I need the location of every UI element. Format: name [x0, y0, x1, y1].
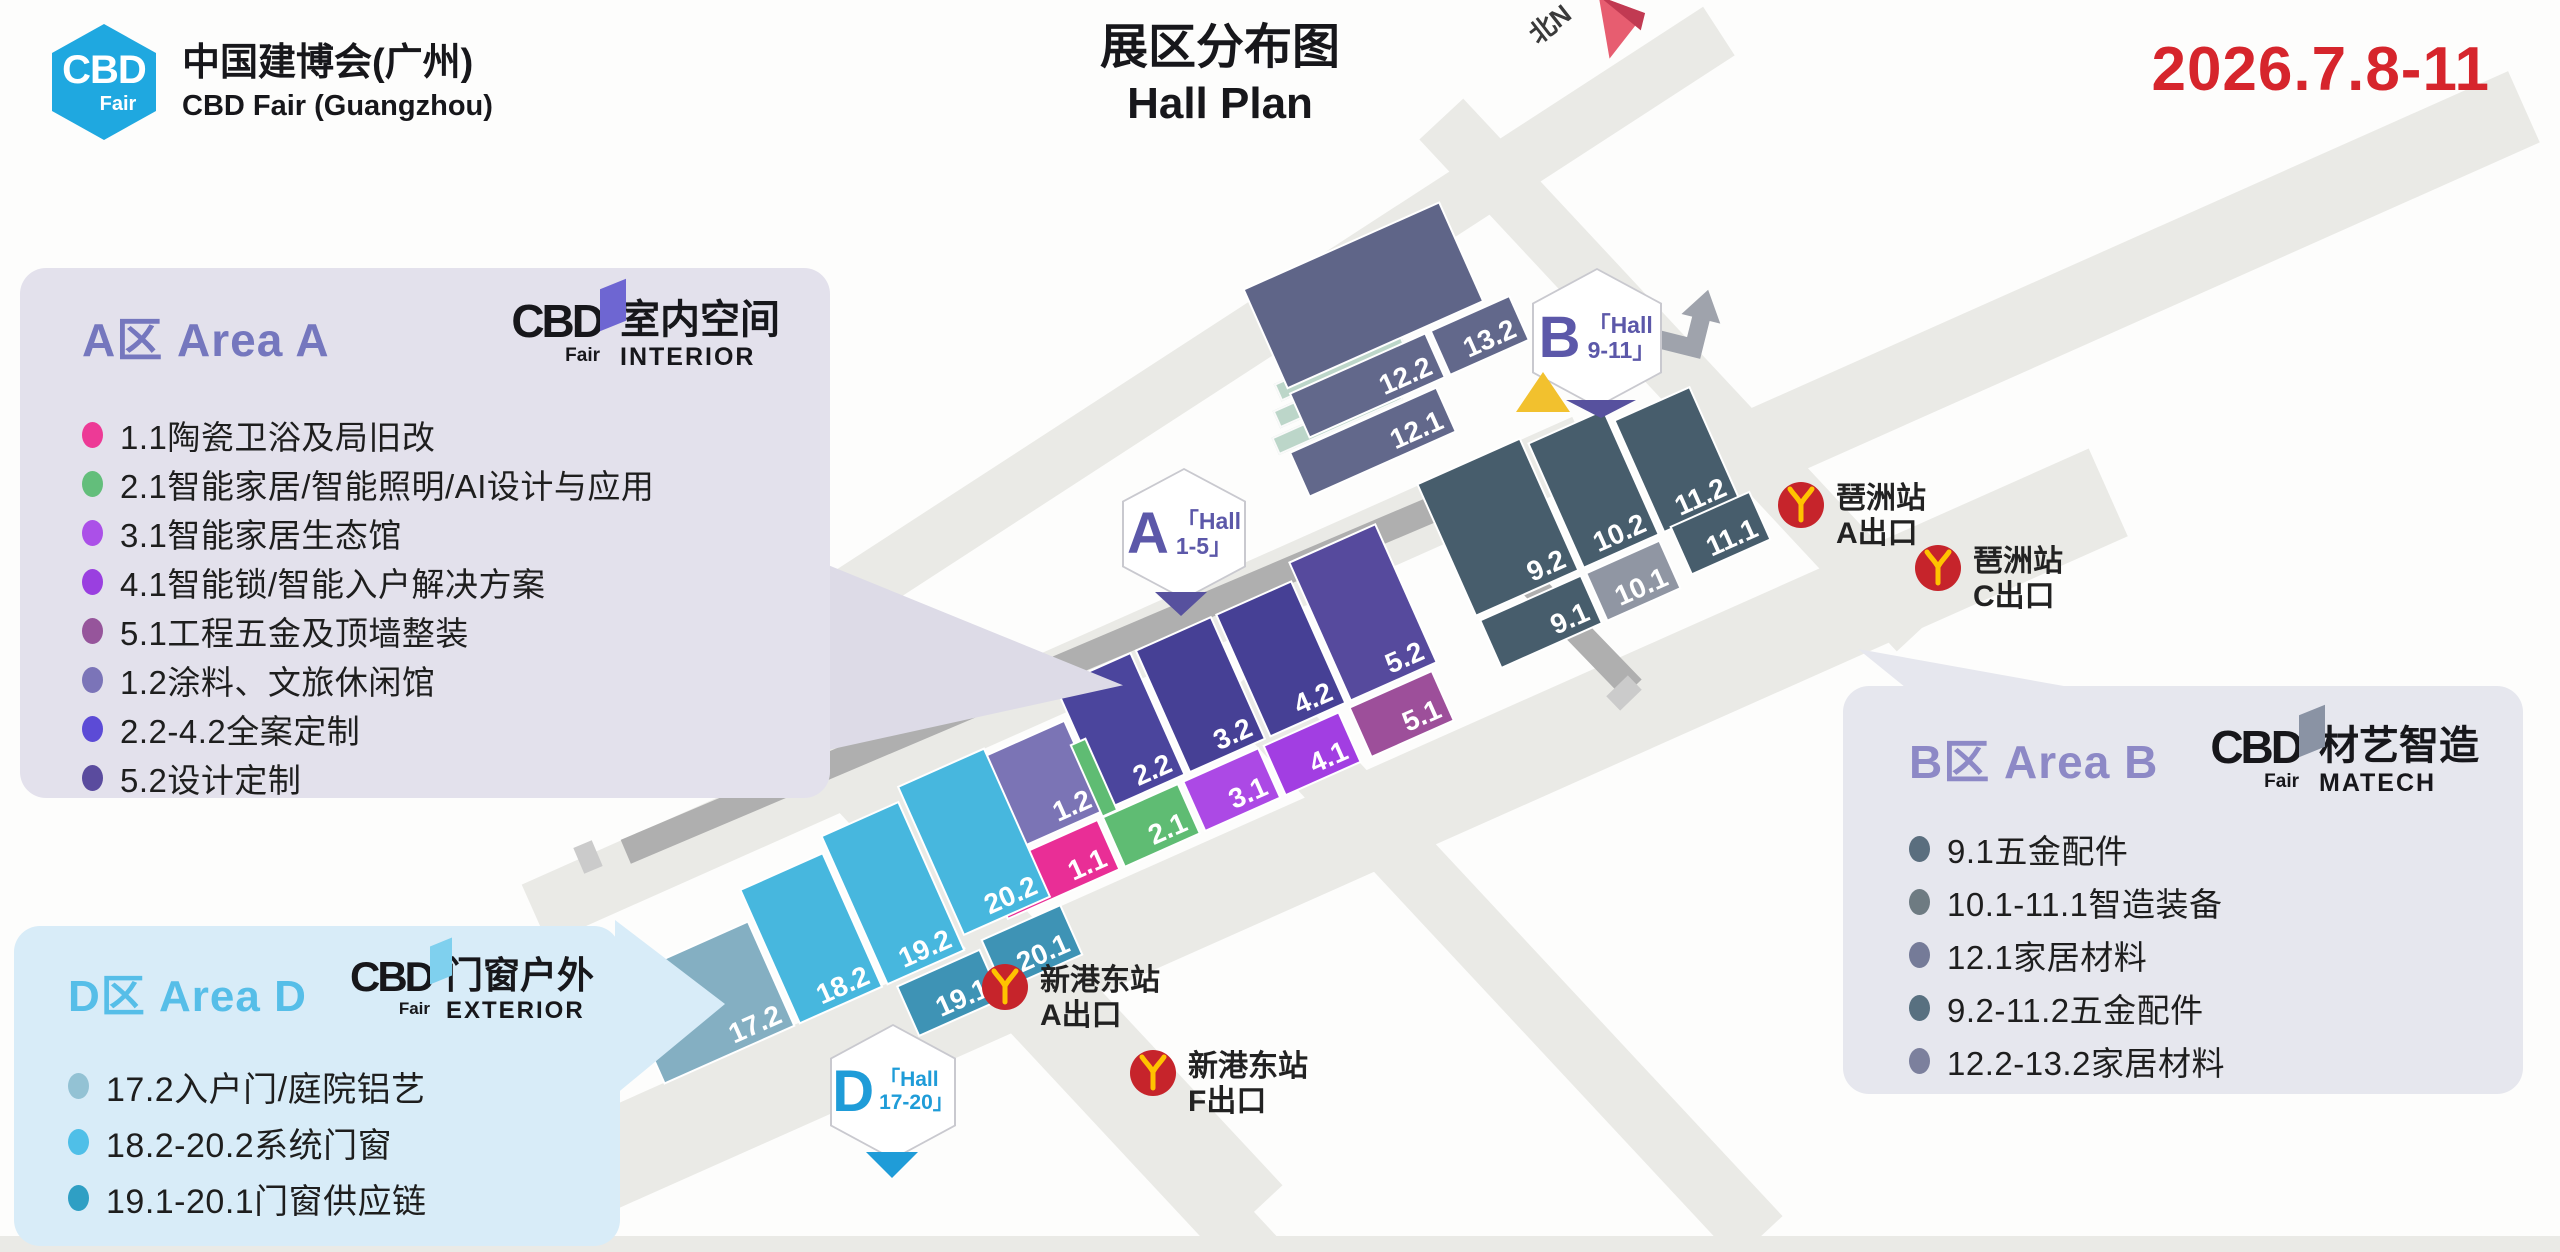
- legend-item: 9.1五金配件: [1909, 822, 2487, 875]
- metro-exit-xingangdong-f: 新港东站F出口: [1130, 1050, 1308, 1119]
- metro-exit-xingangdong-a: 新港东站A出口: [982, 964, 1160, 1033]
- metro-exit-pazhou-a: 琶洲站A出口: [1778, 482, 1926, 551]
- cbd-fair-header-logo: CBD Fair 中国建博会(广州) CBD Fair (Guangzhou): [52, 24, 493, 140]
- legend-dot: [68, 1073, 89, 1099]
- metro-icon: [982, 964, 1028, 1010]
- cbd-fair-logo: CBD Fair: [350, 956, 432, 1017]
- legend-dot: [1909, 995, 1930, 1021]
- legend-item: 3.1智能家居生态馆: [82, 508, 790, 557]
- legend-dot: [1909, 889, 1930, 915]
- metro-icon: [1130, 1050, 1176, 1096]
- page-title: 展区分布图 Hall Plan: [995, 18, 1445, 131]
- legend-dot: [1909, 836, 1930, 862]
- legend-dot: [82, 618, 103, 644]
- legend-item: 9.2-11.2五金配件: [1909, 981, 2487, 1034]
- north-indicator: 北N: [1520, 0, 1578, 51]
- metro-icon: [1778, 482, 1824, 528]
- legend-item: 18.2-20.2系统门窗: [68, 1114, 596, 1170]
- legend-dot: [82, 765, 103, 791]
- area-a-panel: A区 Area A CBD Fair 室内空间 INTERIOR 1.1陶瓷卫浴…: [20, 268, 830, 798]
- cbd-hexagon-logo: CBD Fair: [52, 24, 156, 140]
- marker-hall-17-20: D 「Hall17-20」: [830, 1024, 956, 1160]
- legend-item: 10.1-11.1智造装备: [1909, 875, 2487, 928]
- cbd-fair-logo: CBD Fair: [2210, 724, 2301, 791]
- legend-dot: [68, 1129, 89, 1155]
- legend-item: 2.2-4.2全案定制: [82, 704, 790, 753]
- legend-item: 12.1家居材料: [1909, 928, 2487, 981]
- legend-item: 12.2-13.2家居材料: [1909, 1034, 2487, 1087]
- fair-dates: 2026.7.8-11: [2151, 34, 2490, 105]
- legend-item: 5.1工程五金及顶墙整装: [82, 606, 790, 655]
- area-a-brand-cn: 室内空间: [620, 298, 780, 342]
- area-b-brand-cn: 材艺智造: [2319, 724, 2479, 768]
- metro-exit-pazhou-c: 琶洲站C出口: [1915, 545, 2063, 614]
- legend-item: 5.2设计定制: [82, 753, 790, 802]
- legend-item: 1.2涂料、文旅休闲馆: [82, 655, 790, 704]
- legend-item: 17.2入户门/庭院铝艺: [68, 1058, 596, 1114]
- fair-name-cn: 中国建博会(广州): [182, 40, 493, 88]
- legend-dot: [82, 667, 103, 693]
- area-a-brand-en: INTERIOR: [620, 342, 780, 372]
- legend-dot: [1909, 942, 1930, 968]
- fair-name-en: CBD Fair (Guangzhou): [182, 88, 493, 124]
- area-b-brand-en: MATECH: [2319, 768, 2479, 798]
- area-d-panel: D区 Area D CBD Fair 门窗户外 EXTERIOR 17.2入户门…: [14, 926, 620, 1246]
- area-d-brand-en: EXTERIOR: [446, 997, 594, 1026]
- legend-item: 19.1-20.1门窗供应链: [68, 1170, 596, 1226]
- legend-item: 1.1陶瓷卫浴及局旧改: [82, 410, 790, 459]
- legend-dot: [1909, 1048, 1930, 1074]
- legend-item: 2.1智能家居/智能照明/AI设计与应用: [82, 459, 790, 508]
- legend-dot: [82, 716, 103, 742]
- cbd-fair-logo: CBD Fair: [511, 298, 602, 365]
- legend-dot: [82, 422, 103, 448]
- hall-plan-poster: 1.2 2.2 3.2 4.2 5.2 1.1 2.1 3.1 4.1 5.1 …: [0, 0, 2560, 1252]
- metro-icon: [1915, 545, 1961, 591]
- area-b-panel: B区 Area B CBD Fair 材艺智造 MATECH 9.1五金配件 1…: [1843, 686, 2523, 1094]
- legend-item: 4.1智能锁/智能入户解决方案: [82, 557, 790, 606]
- area-d-brand-cn: 门窗户外: [446, 956, 594, 997]
- legend-dot: [68, 1185, 89, 1211]
- legend-dot: [82, 520, 103, 546]
- legend-dot: [82, 569, 103, 595]
- marker-pointer: [866, 1152, 918, 1178]
- marker-hall-1-5: A 「Hall1-5」: [1122, 468, 1246, 600]
- legend-dot: [82, 471, 103, 497]
